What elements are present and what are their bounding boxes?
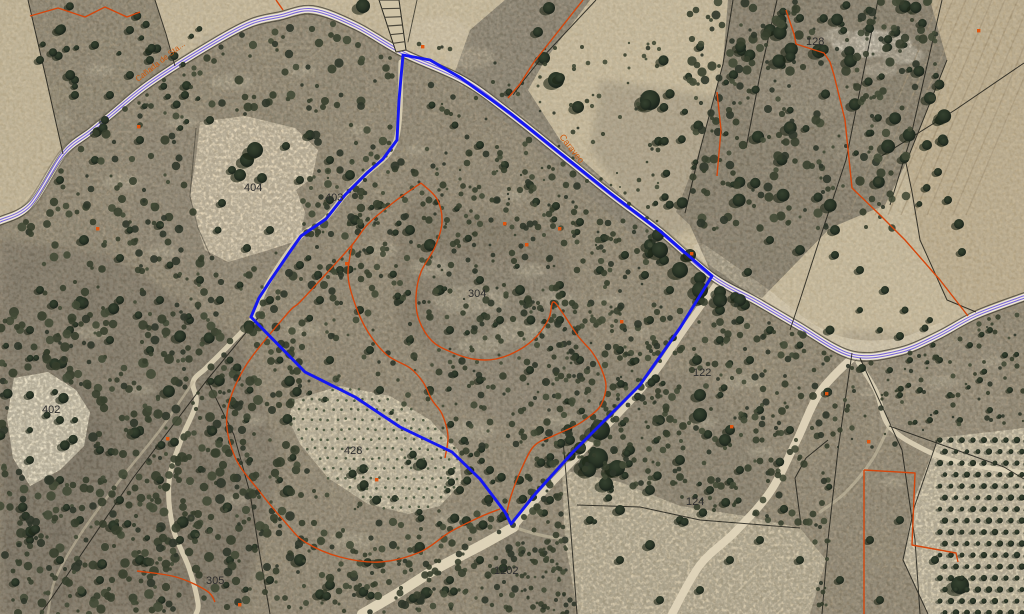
svg-text:404: 404	[244, 182, 262, 194]
svg-text:1202: 1202	[494, 565, 518, 577]
svg-text:403: 403	[325, 192, 343, 204]
svg-text:122: 122	[693, 367, 711, 379]
svg-text:124: 124	[686, 496, 704, 508]
svg-text:128: 128	[806, 36, 824, 48]
svg-text:428: 428	[344, 445, 362, 457]
svg-text:402: 402	[42, 404, 60, 416]
svg-text:305: 305	[206, 575, 224, 587]
svg-text:304: 304	[468, 288, 486, 300]
